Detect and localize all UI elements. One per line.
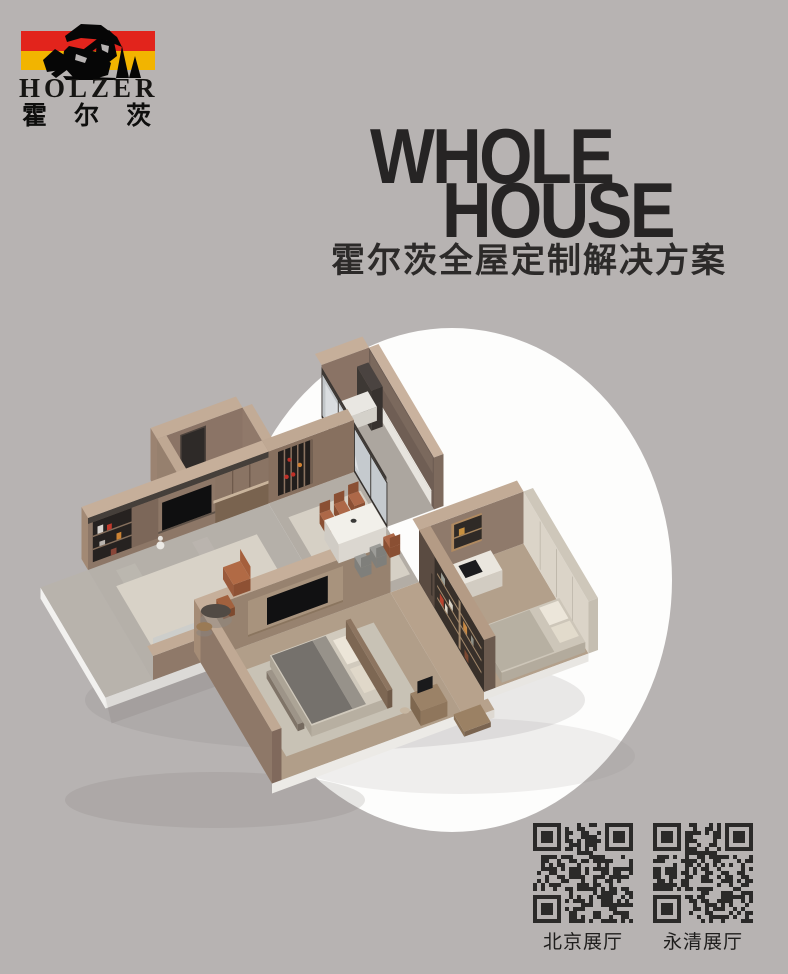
qr-code-beijing: [533, 823, 633, 923]
qr-label-beijing: 北京展厅: [528, 927, 638, 954]
qr-code-yongqing: [653, 823, 753, 923]
qr-label-yongqing: 永清展厅: [648, 927, 758, 954]
poster-background: HOLZER 霍尔茨 WHOLE HOUSE 霍尔茨全屋定制解决方案 北京展厅 …: [0, 0, 788, 974]
